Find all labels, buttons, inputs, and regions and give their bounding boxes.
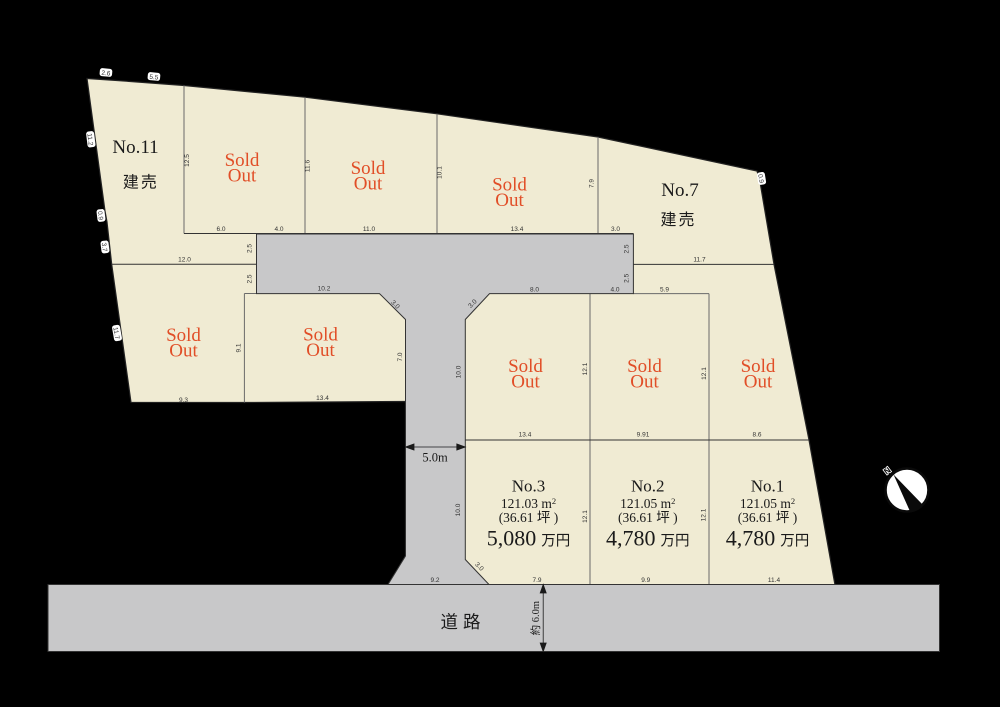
svg-text:建売: 建売 — [123, 174, 159, 192]
svg-text:12.0: 12.0 — [178, 257, 191, 264]
svg-text:12.1: 12.1 — [701, 367, 708, 380]
svg-text:13.4: 13.4 — [316, 395, 329, 402]
svg-text:7.9: 7.9 — [532, 577, 541, 584]
svg-text:No.2: No.2 — [631, 477, 665, 496]
svg-text:2.5: 2.5 — [623, 244, 630, 253]
svg-text:12.1: 12.1 — [582, 510, 589, 523]
svg-text:9.9: 9.9 — [641, 577, 650, 584]
svg-text:12.1: 12.1 — [582, 362, 589, 375]
svg-text:Out: Out — [511, 371, 540, 392]
svg-text:3.7: 3.7 — [100, 242, 108, 252]
svg-text:3.0: 3.0 — [611, 226, 620, 233]
svg-text:8.6: 8.6 — [752, 432, 761, 439]
svg-text:2.5: 2.5 — [623, 273, 630, 282]
svg-text:2.5: 2.5 — [247, 274, 254, 283]
svg-text:8.0: 8.0 — [530, 287, 539, 294]
svg-text:Out: Out — [630, 371, 659, 392]
svg-text:121.05 m2: 121.05 m2 — [620, 496, 675, 511]
svg-text:約 6.0m: 約 6.0m — [529, 601, 542, 635]
svg-text:11.0: 11.0 — [363, 226, 376, 233]
svg-text:7.9: 7.9 — [589, 179, 596, 188]
svg-text:9.1: 9.1 — [236, 343, 243, 352]
svg-text:2.5: 2.5 — [247, 244, 254, 253]
svg-text:5.5: 5.5 — [149, 74, 159, 82]
svg-text:No.1: No.1 — [751, 477, 785, 496]
svg-text:Out: Out — [744, 371, 773, 392]
svg-text:Out: Out — [169, 340, 198, 361]
svg-text:6.0: 6.0 — [216, 226, 225, 233]
svg-text:7.0: 7.0 — [397, 352, 404, 361]
svg-text:121.05 m2: 121.05 m2 — [740, 496, 795, 511]
svg-text:5.9: 5.9 — [660, 287, 669, 294]
svg-text:Out: Out — [354, 174, 383, 195]
svg-text:5.0m: 5.0m — [422, 451, 448, 465]
svg-text:Out: Out — [228, 165, 257, 186]
svg-text:道路: 道路 — [441, 612, 486, 632]
svg-text:11.6: 11.6 — [305, 160, 312, 173]
svg-text:13.4: 13.4 — [519, 432, 532, 439]
svg-text:10.1: 10.1 — [437, 166, 444, 179]
svg-text:4.0: 4.0 — [274, 226, 283, 233]
svg-text:11.4: 11.4 — [768, 577, 781, 584]
svg-text:2.6: 2.6 — [101, 70, 111, 78]
svg-text:0.9: 0.9 — [96, 211, 104, 221]
svg-text:9.2: 9.2 — [430, 577, 439, 584]
svg-text:Out: Out — [495, 190, 524, 211]
svg-text:11.7: 11.7 — [693, 257, 706, 264]
svg-text:No.11: No.11 — [112, 137, 158, 158]
svg-text:4.0: 4.0 — [610, 287, 619, 294]
svg-text:10.2: 10.2 — [318, 286, 331, 293]
svg-text:12.5: 12.5 — [184, 154, 191, 167]
svg-text:13.4: 13.4 — [511, 226, 524, 233]
svg-text:(36.61 坪 ): (36.61 坪 ) — [499, 510, 559, 525]
svg-text:(36.61 坪 ): (36.61 坪 ) — [738, 510, 798, 525]
svg-text:No.3: No.3 — [512, 477, 546, 496]
svg-text:Out: Out — [306, 340, 335, 361]
svg-text:10.0: 10.0 — [455, 503, 462, 516]
svg-text:9.3: 9.3 — [179, 397, 188, 404]
svg-text:121.03 m2: 121.03 m2 — [501, 496, 556, 511]
svg-text:12.1: 12.1 — [701, 508, 708, 521]
svg-text:No.7: No.7 — [661, 180, 698, 201]
svg-text:9.91: 9.91 — [637, 432, 650, 439]
svg-text:10.0: 10.0 — [456, 365, 463, 378]
svg-text:0.9: 0.9 — [756, 174, 764, 184]
svg-text:建売: 建売 — [660, 211, 696, 229]
svg-text:(36.61 坪 ): (36.61 坪 ) — [618, 510, 678, 525]
